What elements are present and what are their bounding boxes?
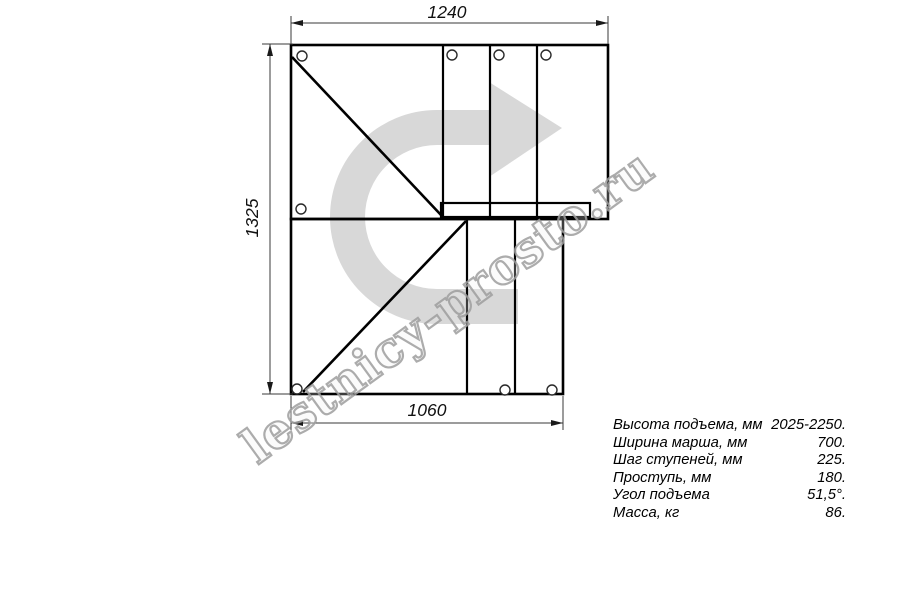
staircase-drawing-page: 1240 1325 1060 lestnicy-prosto.ru Высота…: [0, 0, 900, 600]
spec-label: Высота подъема, мм: [613, 417, 763, 435]
spec-label: Масса, кг: [613, 505, 679, 523]
spec-value: 225.: [817, 452, 846, 470]
spec-row: Масса, кг 86.: [613, 505, 846, 523]
spec-value: 2025-2250.: [771, 417, 846, 435]
spec-value: 700.: [817, 435, 846, 453]
spec-label: Угол подъема: [613, 487, 710, 505]
mounting-hole: [494, 50, 504, 60]
spec-label: Ширина марша, мм: [613, 435, 747, 453]
spec-row: Ширина марша, мм 700.: [613, 435, 846, 453]
dim-arrowhead: [291, 20, 303, 26]
spec-value: 180.: [817, 470, 846, 488]
spec-label: Шаг ступеней, мм: [613, 452, 743, 470]
mounting-hole: [500, 385, 510, 395]
spec-label: Проступь, мм: [613, 470, 711, 488]
spec-value: 51,5°.: [807, 487, 846, 505]
dim-arrowhead: [267, 382, 273, 394]
spec-row: Проступь, мм 180.: [613, 470, 846, 488]
mounting-hole: [296, 204, 306, 214]
dim-arrowhead: [596, 20, 608, 26]
mounting-hole: [292, 384, 302, 394]
mounting-hole: [541, 50, 551, 60]
dim-arrowhead: [291, 420, 303, 426]
mounting-hole: [447, 50, 457, 60]
landing-step: [441, 203, 590, 217]
mounting-hole: [297, 51, 307, 61]
spec-row: Высота подъема, мм 2025-2250.: [613, 417, 846, 435]
spec-row: Шаг ступеней, мм 225.: [613, 452, 846, 470]
spec-value: 86.: [825, 505, 846, 523]
spec-list: Высота подъема, мм 2025-2250. Ширина мар…: [613, 417, 846, 523]
dimension-bottom-label: 1060: [408, 400, 447, 420]
dimension-top-label: 1240: [428, 2, 467, 22]
dimension-left-label: 1325: [242, 198, 262, 237]
spec-row: Угол подъема 51,5°.: [613, 487, 846, 505]
dim-arrowhead: [551, 420, 563, 426]
mounting-hole: [547, 385, 557, 395]
dim-arrowhead: [267, 44, 273, 56]
dimension-left: [262, 44, 293, 394]
